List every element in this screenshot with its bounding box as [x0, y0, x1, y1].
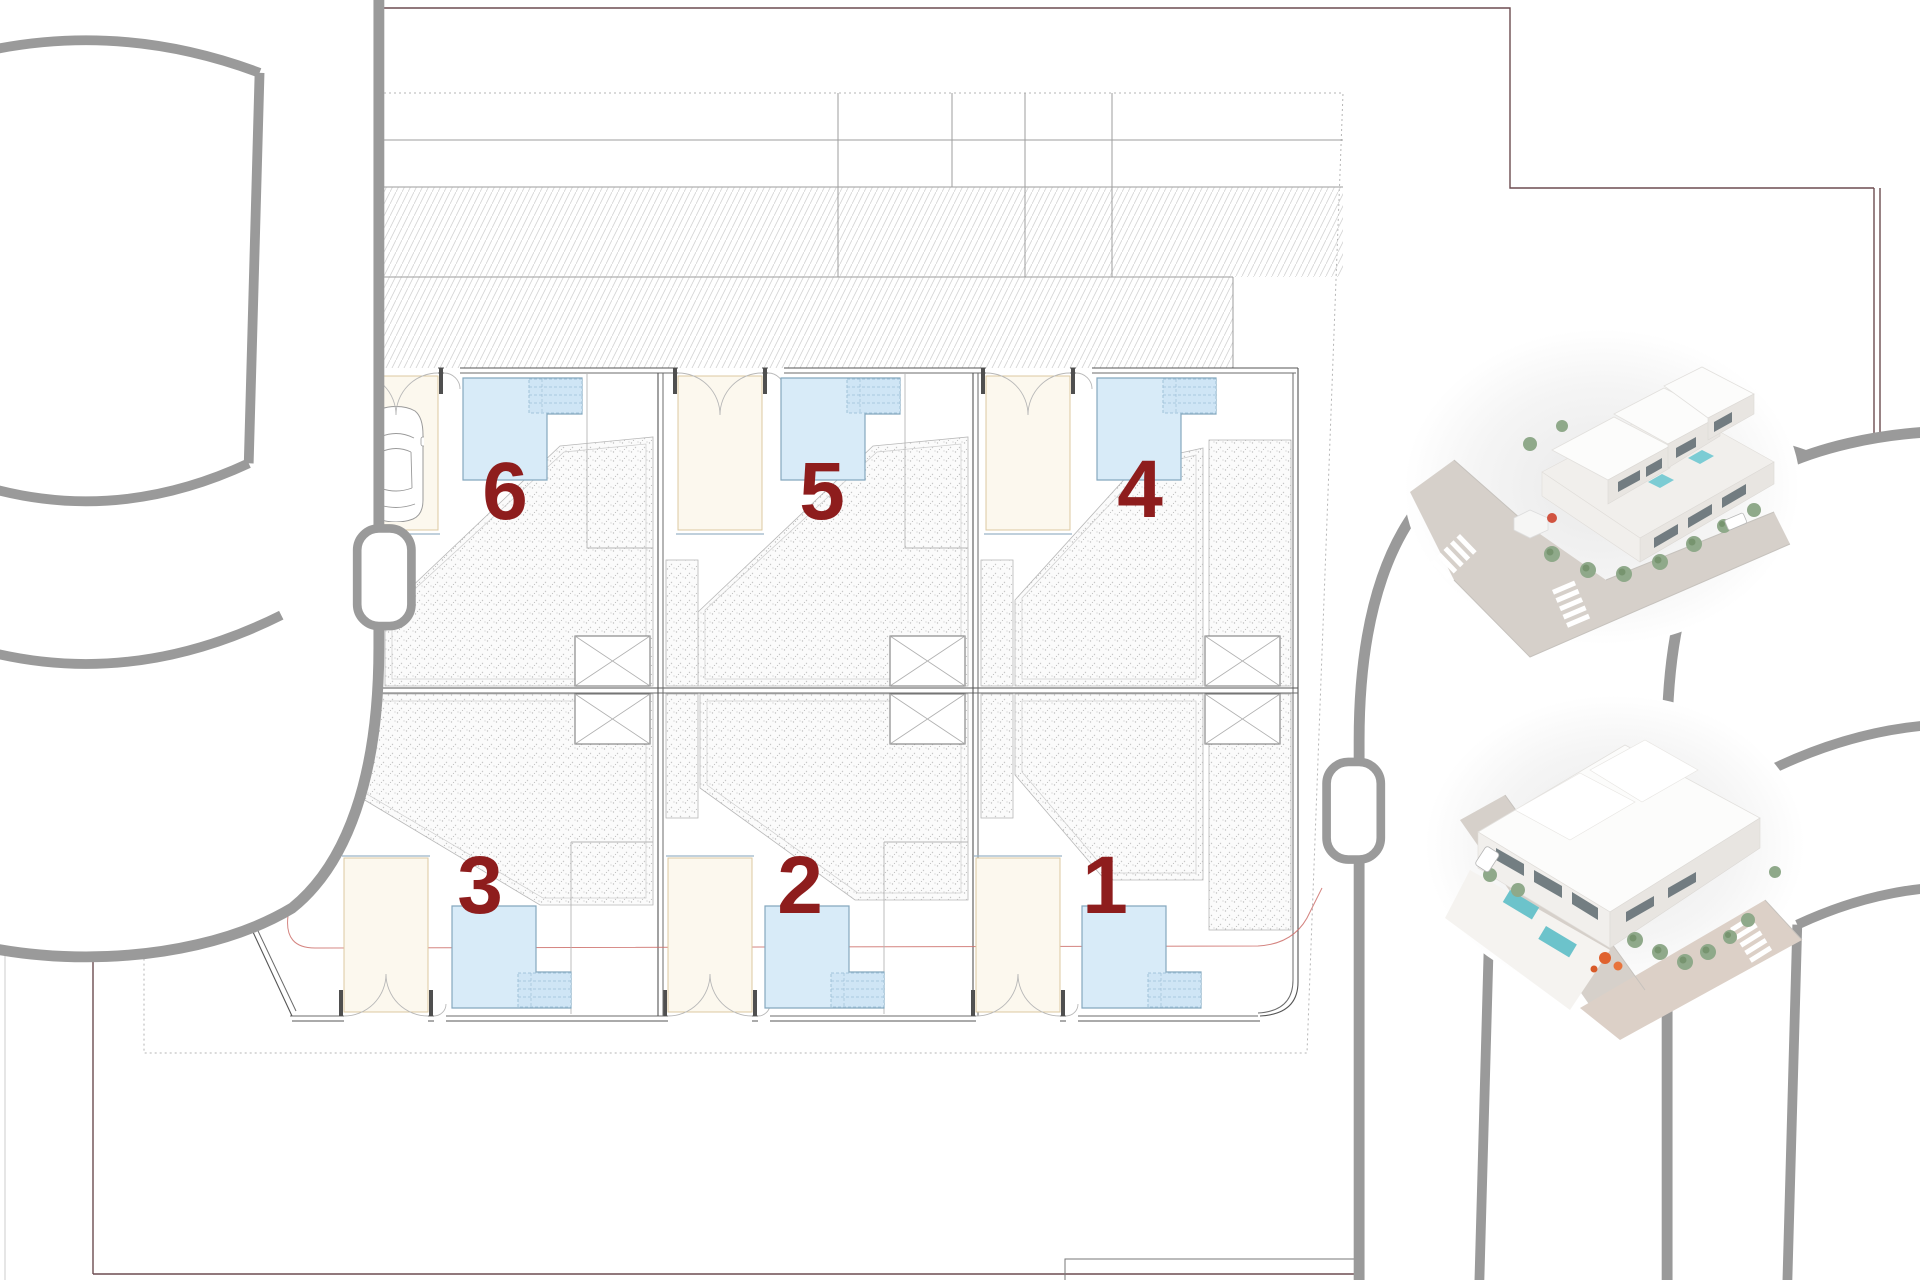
unit-number-6: 6: [482, 446, 528, 537]
side-roof-strip: [666, 560, 698, 686]
stair-shaft-icon: [575, 636, 650, 744]
pool-steps: [518, 973, 571, 1007]
side-roof-strip: [666, 694, 698, 818]
unit-number-4: 4: [1117, 444, 1163, 535]
entry-door-arc: [434, 1004, 446, 1016]
parking-space-icon: [986, 376, 1070, 530]
parking-space-icon: [668, 858, 752, 1012]
pool-steps: [529, 379, 582, 413]
entry-door-arc: [1066, 1004, 1078, 1016]
entry-door-arc: [1076, 373, 1092, 389]
unit-number-5: 5: [799, 446, 845, 537]
parking-space-icon: [678, 376, 762, 530]
car-icon: [0, 0, 411, 957]
sidewalk-hatch-upper: [250, 187, 1343, 277]
site-plan-drawing: 6 5 4: [0, 0, 1920, 1280]
pool-steps: [831, 973, 884, 1007]
parking-space-icon: [976, 858, 1060, 1012]
entry-door-arc: [444, 373, 460, 389]
stair-shaft-icon: [1205, 636, 1280, 744]
sidewalk-hatch-lower: [247, 277, 1233, 368]
pool-steps: [1163, 379, 1216, 413]
stair-shaft-icon: [890, 636, 965, 744]
pool-steps: [847, 379, 900, 413]
parking-space-icon: [344, 858, 428, 1012]
side-roof-strip: [981, 560, 1013, 686]
street-area: [233, 93, 1343, 368]
plan-sheet: 6 5 4: [0, 0, 1920, 1280]
red-parasol: [1547, 513, 1557, 523]
side-roof-strip: [981, 694, 1013, 818]
unit-number-3: 3: [457, 840, 503, 931]
unit-number-1: 1: [1082, 840, 1128, 931]
pool-steps: [1148, 973, 1201, 1007]
unit-number-2: 2: [777, 840, 823, 931]
